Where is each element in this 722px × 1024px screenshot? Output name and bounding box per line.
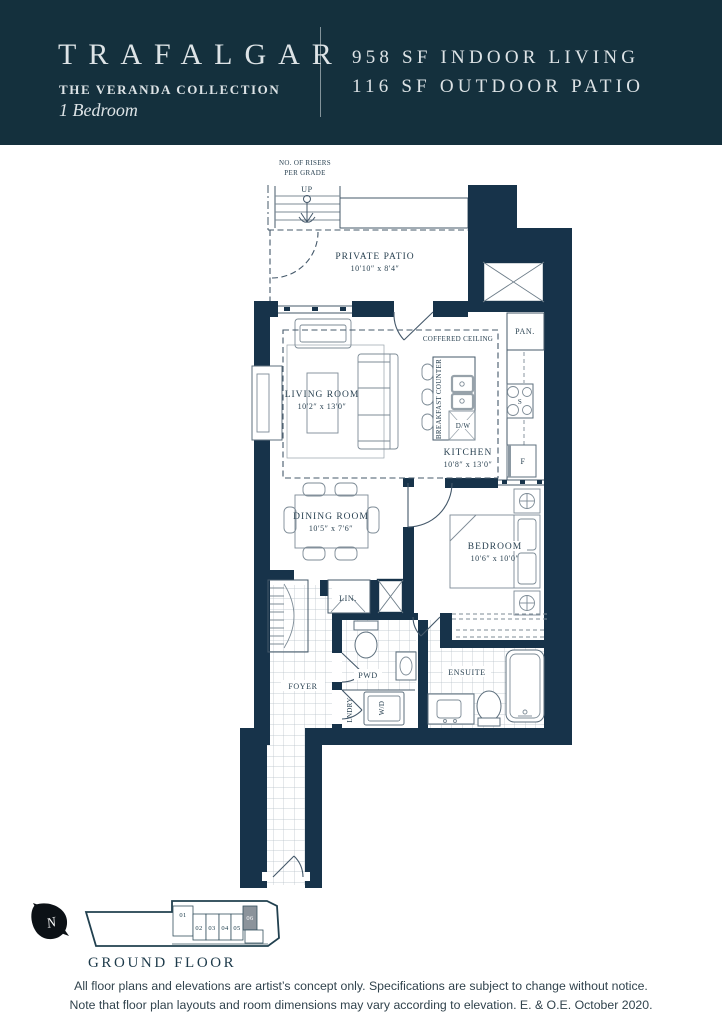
fridge-label: F [520, 457, 525, 466]
stool [422, 364, 433, 380]
patio-gate-door-arc [272, 232, 318, 278]
dishwasher: D/W [449, 411, 475, 440]
ensuite-label: ENSUITE [448, 668, 486, 677]
pantry: PAN. [507, 313, 544, 350]
shaft-top [483, 262, 544, 302]
living-room-label: LIVING ROOM [285, 390, 360, 400]
project-title: TRAFALGAR [58, 38, 344, 72]
bedroom-dims: 10′6″ x 10′0″ [471, 554, 520, 563]
ensuite-toilet [477, 691, 501, 726]
nightstand [514, 489, 540, 513]
keyplan-unit-02-label: 02 [195, 925, 202, 932]
dining-room-label: DINING ROOM [293, 512, 369, 522]
keyplan-unit-06-label: 06 [246, 915, 254, 922]
stove-label: S [518, 398, 522, 406]
stool [422, 414, 433, 430]
keyplan-unit-04-label: 04 [221, 925, 229, 932]
unit-type-label: 1 Bedroom [59, 100, 138, 121]
laundry: W/D LNDRY [346, 692, 404, 725]
coffered-ceiling-label: COFFERED CEILING [423, 335, 493, 343]
pwd-sink [396, 652, 416, 680]
dining-chair [335, 483, 357, 496]
bedroom-closet [452, 614, 548, 637]
dining-chair [303, 483, 325, 496]
washer-dryer: W/D [364, 692, 404, 725]
bathtub [506, 650, 544, 722]
disclaimer: All floor plans and elevations are artis… [0, 977, 722, 1015]
keyplan-unit-03-label: 03 [208, 925, 215, 932]
living-room: LIVING ROOM 10′2″ x 13′0″ [252, 319, 398, 458]
floorplan-page: TRAFALGAR THE VERANDA COLLECTION 1 Bedro… [0, 0, 722, 1024]
risers-note-line2: PER GRADE [284, 169, 325, 177]
risers-note-line1: NO. OF RISERS [279, 159, 331, 167]
fridge: F [507, 445, 536, 477]
washer-dryer-label: W/D [378, 701, 386, 716]
bedroom: BEDROOM 10′6″ x 10′0″ [450, 489, 548, 637]
foyer-label: FOYER [288, 682, 317, 691]
dining-room: DINING ROOM 10′5″ x 7′6″ [284, 483, 379, 560]
kitchen-label: KITCHEN [444, 448, 493, 458]
keyplan: 01 02 03 04 05 06 GROUND FLOOR N [31, 901, 279, 971]
ground-floor-label: GROUND FLOOR [88, 955, 236, 971]
keyplan-unit-05-label: 05 [233, 925, 240, 932]
stove: S [507, 384, 533, 418]
private-patio: PRIVATE PATIO 10′10″ x 8′4″ [268, 230, 468, 303]
vanity [428, 694, 474, 724]
pwd-toilet [354, 621, 378, 658]
keyplan-unit-01-label: 01 [179, 912, 186, 919]
header-banner: TRAFALGAR THE VERANDA COLLECTION 1 Bedro… [0, 0, 722, 145]
bedroom-door [408, 483, 452, 527]
shaft-middle [378, 580, 403, 613]
header-divider [320, 27, 321, 117]
breakfast-counter-island: D/W BREAKFAST COUNTER [422, 357, 475, 440]
island-sink [452, 376, 473, 409]
exterior-stairs: UP NO. OF RISERS PER GRADE [268, 159, 468, 230]
north-arrow-icon: N [31, 903, 69, 939]
up-label: UP [301, 185, 312, 194]
dining-chair [303, 547, 325, 560]
floorplan-drawing: UP NO. OF RISERS PER GRADE PRIVATE PATIO… [0, 145, 722, 1024]
dining-room-dims: 10′5″ x 7′6″ [309, 524, 353, 533]
linen-closet: LIN. [328, 580, 370, 613]
linen-label: LIN. [339, 594, 357, 603]
loveseat [295, 319, 351, 348]
sofa [358, 354, 398, 449]
pantry-label: PAN. [515, 327, 535, 336]
indoor-area-stat: 958 SF INDOOR LIVING [352, 43, 644, 72]
keyplan-unit-01 [173, 906, 193, 936]
collection-subtitle: THE VERANDA COLLECTION [59, 82, 280, 98]
media-console [252, 366, 282, 440]
laundry-label: LNDRY [346, 697, 354, 722]
bedroom-label: BEDROOM [468, 542, 523, 552]
patio-label: PRIVATE PATIO [335, 252, 414, 262]
foyer: FOYER [281, 680, 325, 691]
patio-dims: 10′10″ x 8′4″ [351, 264, 400, 273]
area-stats: 958 SF INDOOR LIVING 116 SF OUTDOOR PATI… [352, 43, 644, 101]
disclaimer-line2: Note that floor plan layouts and room di… [0, 996, 722, 1015]
nightstand [514, 591, 540, 615]
upper-deck [340, 198, 468, 228]
stool [422, 389, 433, 405]
breakfast-counter-label: BREAKFAST COUNTER [435, 359, 443, 439]
dining-chair [335, 547, 357, 560]
outdoor-area-stat: 116 SF OUTDOOR PATIO [352, 72, 644, 101]
living-room-dims: 10′2″ x 13′0″ [298, 402, 347, 411]
pwd-label: PWD [358, 671, 378, 680]
dishwasher-label: D/W [456, 422, 471, 430]
disclaimer-line1: All floor plans and elevations are artis… [0, 977, 722, 996]
kitchen-dims: 10′8″ x 13′0″ [444, 460, 493, 469]
